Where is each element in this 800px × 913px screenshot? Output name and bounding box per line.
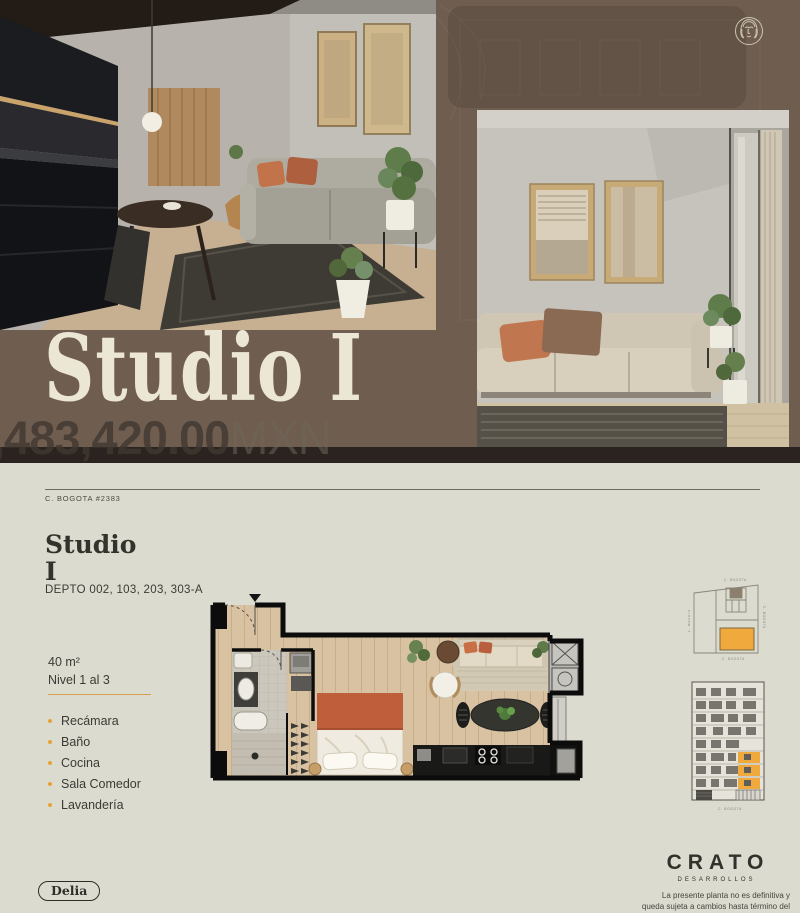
building-elevation: C. BOGOTA xyxy=(686,678,786,818)
stove xyxy=(475,746,501,765)
street-label-left: C. BOGOTA xyxy=(688,609,691,632)
specs-block: 40 m² Nivel 1 al 3 xyxy=(48,653,110,689)
unit-badge: Delia xyxy=(38,881,100,901)
armchair xyxy=(431,672,459,698)
sofa-beige xyxy=(477,308,723,398)
left-interior-photo xyxy=(0,0,436,330)
unit-title-line1: Studio xyxy=(45,531,136,558)
floor-plan xyxy=(205,593,615,793)
feature-item: Recámara xyxy=(48,710,141,731)
bathroom xyxy=(232,650,287,775)
area-label: 40 m² xyxy=(48,653,110,671)
unit-title-line2: I xyxy=(45,558,136,585)
bullet-icon xyxy=(48,803,52,807)
wall-art-frames xyxy=(318,24,410,134)
right-interior-photo xyxy=(477,110,789,447)
feature-label: Lavandería xyxy=(61,798,124,812)
kitchen-counter xyxy=(413,745,550,777)
feature-item: Baño xyxy=(48,731,141,752)
oven xyxy=(507,747,533,763)
level-label: Nivel 1 al 3 xyxy=(48,671,110,689)
rounded-panel-overlay xyxy=(448,6,746,108)
entrance-arrow-icon xyxy=(249,594,261,602)
hero-price: ,483,420.00MXN xyxy=(0,414,331,461)
street-label-top: C. BOGOTA xyxy=(724,578,747,582)
kitchen-cabinets xyxy=(0,16,118,330)
feature-label: Recámara xyxy=(61,714,119,728)
features-list: Recámara Baño Cocina Sala Comedor Lavand… xyxy=(48,710,141,815)
feature-label: Cocina xyxy=(61,756,100,770)
brochure-page: Studio I ,483,420.00MXN C. BOGOTA #2383 … xyxy=(0,0,800,913)
brand-emblem-icon xyxy=(733,15,765,47)
small-plant xyxy=(229,145,243,159)
bed xyxy=(309,693,413,775)
feature-label: Sala Comedor xyxy=(61,777,141,791)
kitchen-sink xyxy=(443,748,467,763)
bullet-icon xyxy=(48,782,52,786)
feature-label: Baño xyxy=(61,735,90,749)
bedside-stool xyxy=(309,763,321,775)
price-amount: ,483,420.00 xyxy=(0,411,229,464)
bullet-icon xyxy=(48,761,52,765)
side-table xyxy=(437,641,459,663)
bullet-icon xyxy=(48,740,52,744)
unit-title: Studio I xyxy=(45,531,136,585)
hero-title: Studio I xyxy=(44,322,363,414)
shower-drain xyxy=(252,753,259,760)
accent-divider xyxy=(48,694,151,695)
hero-section: Studio I ,483,420.00MXN xyxy=(0,0,800,447)
header-rule xyxy=(45,489,760,490)
sink xyxy=(238,678,254,700)
feature-item: Sala Comedor xyxy=(48,773,141,794)
laundry-units xyxy=(549,639,581,693)
depto-label: DEPTO 002, 103, 203, 303-A xyxy=(45,584,203,596)
street-label-bottom: C. BOGOTA xyxy=(722,657,745,661)
developer-name: CRATO xyxy=(646,851,790,875)
toilet xyxy=(234,653,252,668)
spec-sheet: C. BOGOTA #2383 Studio I DEPTO 002, 103,… xyxy=(0,463,800,913)
feature-item: Lavandería xyxy=(48,794,141,815)
bathtub xyxy=(234,712,267,730)
disclaimer-text: La presente planta no es definitiva y qu… xyxy=(640,890,790,913)
site-plan: C. BOGOTA C. BOGOTA C. BOGOTA C. BOGOTA xyxy=(688,570,794,670)
developer-logo: CRATO DESARROLLOS La presente planta no … xyxy=(640,851,790,913)
address-label: C. BOGOTA #2383 xyxy=(45,494,121,503)
bedside-stool xyxy=(401,763,413,775)
elevation-street-label: C. BOGOTA xyxy=(718,807,742,811)
developer-subtitle: DESARROLLOS xyxy=(643,877,790,883)
highlighted-lot xyxy=(720,628,754,650)
price-currency: MXN xyxy=(229,411,330,464)
highlighted-units xyxy=(738,752,760,789)
street-label-right: C. BOGOTA xyxy=(762,606,766,629)
rug xyxy=(477,406,727,447)
bullet-icon xyxy=(48,719,52,723)
utility-box-2 xyxy=(291,676,311,691)
feature-item: Cocina xyxy=(48,752,141,773)
